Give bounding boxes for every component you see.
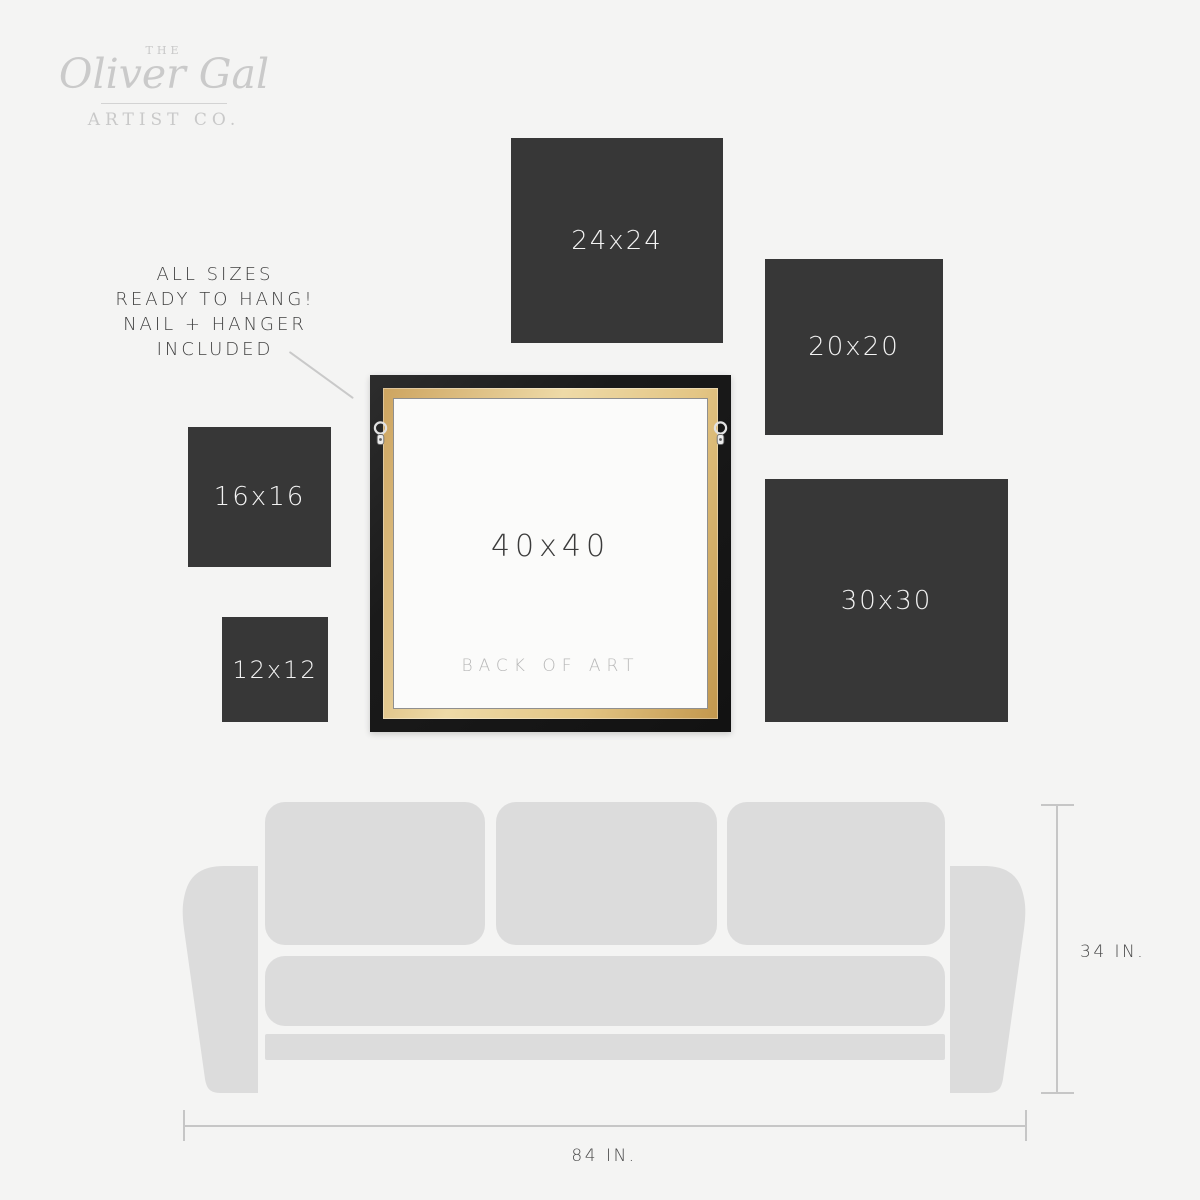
size-box-20x20: 20x20 — [765, 259, 943, 435]
couch-back-cushion — [496, 802, 717, 945]
size-box-12x12: 12x12 — [222, 617, 328, 722]
brand-logo-subtitle: ARTIST CO. — [58, 110, 270, 130]
couch-height-label: 34 IN. — [1080, 942, 1145, 962]
brand-logo-name: Oliver Gal — [58, 51, 270, 98]
d-ring-hanger-icon — [713, 419, 728, 453]
height-dimension-cap-bottom — [1041, 1092, 1074, 1094]
note-line-2: READY TO HANG! — [100, 287, 330, 312]
frame-40x40-back: 40x40 BACK OF ART — [370, 375, 731, 732]
width-dimension-cap-left — [183, 1110, 185, 1141]
size-guide-graphic: THE Oliver Gal ARTIST CO. ALL SIZES READ… — [0, 0, 1200, 1200]
note-line-3: NAIL + HANGER — [100, 312, 330, 337]
brand-logo: THE Oliver Gal ARTIST CO. — [58, 44, 270, 130]
frame-size-label: 40x40 — [491, 529, 610, 564]
couch-silhouette — [180, 795, 1040, 1105]
size-box-12x12-label: 12x12 — [232, 656, 317, 684]
note-line-1: ALL SIZES — [100, 262, 330, 287]
width-dimension-cap-right — [1025, 1110, 1027, 1141]
couch-right-arm — [950, 866, 1025, 1093]
width-dimension-line — [183, 1125, 1027, 1127]
note-line-4: INCLUDED — [100, 337, 330, 362]
brand-logo-divider — [101, 103, 227, 104]
height-dimension-line — [1056, 805, 1058, 1094]
couch-seat-cushion — [265, 956, 945, 1026]
size-box-30x30: 30x30 — [765, 479, 1008, 722]
size-box-20x20-label: 20x20 — [808, 332, 900, 362]
height-dimension-cap-top — [1041, 804, 1074, 806]
couch-base-bar — [265, 1034, 945, 1060]
couch-width-label: 84 IN. — [549, 1146, 659, 1166]
canvas-back-panel: 40x40 BACK OF ART — [393, 398, 708, 709]
stretcher-bar-wood: 40x40 BACK OF ART — [383, 388, 718, 719]
couch-left-arm — [183, 866, 258, 1093]
couch-back-cushion — [265, 802, 485, 945]
size-box-16x16-label: 16x16 — [214, 482, 306, 512]
size-box-16x16: 16x16 — [188, 427, 331, 567]
size-box-24x24-label: 24x24 — [571, 226, 663, 256]
d-ring-hanger-icon — [373, 419, 388, 453]
ready-to-hang-note: ALL SIZES READY TO HANG! NAIL + HANGER I… — [100, 262, 330, 362]
couch-back-cushion — [727, 802, 945, 945]
size-box-24x24: 24x24 — [511, 138, 723, 343]
back-of-art-label: BACK OF ART — [394, 656, 707, 676]
size-box-30x30-label: 30x30 — [841, 586, 933, 616]
